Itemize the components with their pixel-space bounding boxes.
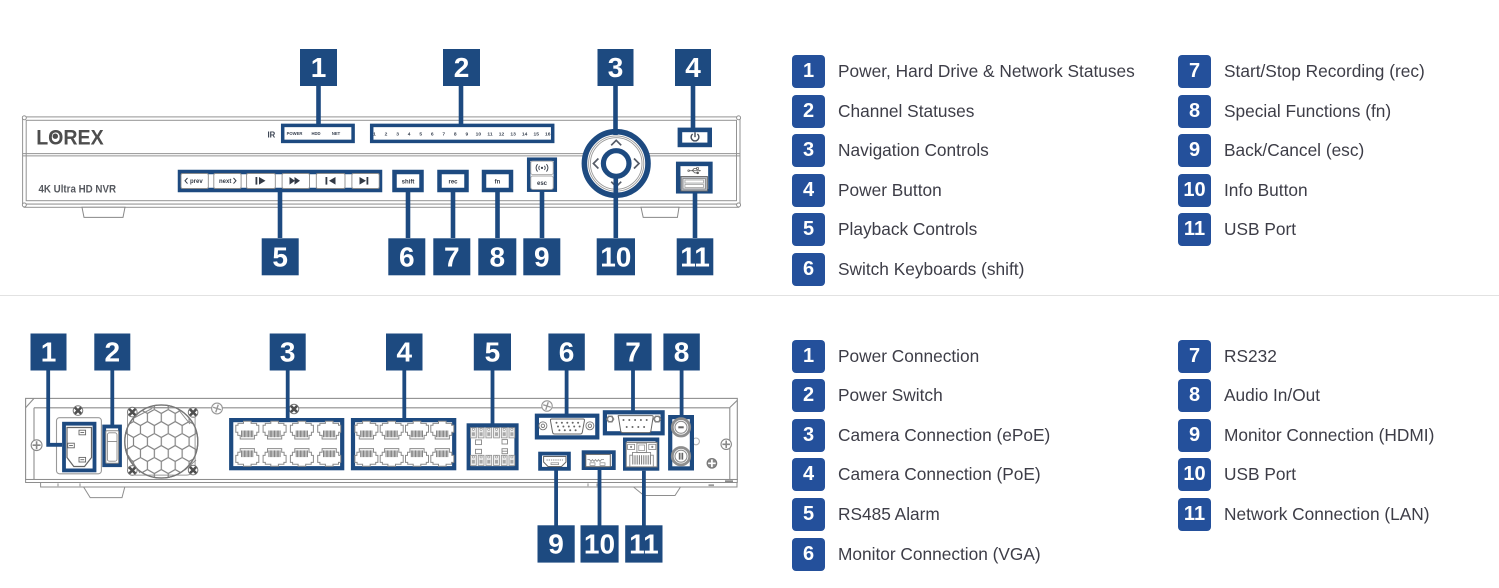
svg-text:5: 5 — [485, 337, 501, 368]
svg-text:9: 9 — [548, 529, 564, 560]
svg-text:9: 9 — [534, 241, 550, 272]
svg-text:11: 11 — [680, 241, 710, 272]
svg-text:POWER: POWER — [287, 131, 303, 136]
svg-text:4: 4 — [408, 131, 411, 137]
svg-text:10: 10 — [584, 529, 615, 560]
svg-text:3: 3 — [280, 337, 296, 368]
svg-text:HDD: HDD — [311, 131, 320, 136]
svg-text:esc: esc — [537, 181, 548, 187]
svg-text:8: 8 — [674, 337, 690, 368]
svg-text:10: 10 — [600, 241, 631, 272]
svg-text:16: 16 — [545, 131, 551, 137]
svg-text:2: 2 — [105, 337, 121, 368]
svg-text:5: 5 — [419, 131, 422, 137]
svg-text:next: next — [219, 179, 231, 185]
svg-text:5: 5 — [272, 241, 288, 272]
svg-text:9: 9 — [466, 131, 469, 137]
svg-text:8: 8 — [454, 131, 457, 137]
svg-text:10: 10 — [476, 131, 482, 137]
svg-text:NET: NET — [332, 131, 341, 136]
svg-text:1: 1 — [373, 131, 376, 137]
svg-text:3: 3 — [608, 52, 624, 83]
svg-text:4: 4 — [397, 337, 413, 368]
svg-text:7: 7 — [625, 337, 641, 368]
svg-text:7: 7 — [442, 131, 445, 137]
svg-text:14: 14 — [522, 131, 528, 137]
svg-text:IR: IR — [268, 130, 276, 139]
svg-text:4: 4 — [685, 52, 701, 83]
svg-text:11: 11 — [629, 529, 659, 560]
svg-text:7: 7 — [444, 241, 460, 272]
svg-text:2: 2 — [454, 52, 470, 83]
svg-text:prev: prev — [190, 179, 203, 185]
svg-text:LOREX: LOREX — [36, 125, 104, 149]
svg-text:12: 12 — [499, 131, 505, 137]
svg-text:13: 13 — [510, 131, 516, 137]
svg-text:6: 6 — [399, 241, 415, 272]
svg-text:1: 1 — [41, 337, 57, 368]
svg-text:8: 8 — [490, 241, 506, 272]
svg-text:shift: shift — [402, 179, 415, 185]
svg-text:6: 6 — [559, 337, 575, 368]
svg-text:rec: rec — [448, 179, 458, 185]
svg-text:11: 11 — [487, 131, 492, 137]
svg-text:4K Ultra HD NVR: 4K Ultra HD NVR — [39, 183, 117, 195]
svg-text:2: 2 — [385, 131, 388, 137]
svg-text:3: 3 — [396, 131, 399, 137]
svg-text:fn: fn — [495, 179, 501, 185]
svg-text:15: 15 — [533, 131, 539, 137]
svg-text:6: 6 — [431, 131, 434, 137]
svg-text:1: 1 — [311, 52, 327, 83]
